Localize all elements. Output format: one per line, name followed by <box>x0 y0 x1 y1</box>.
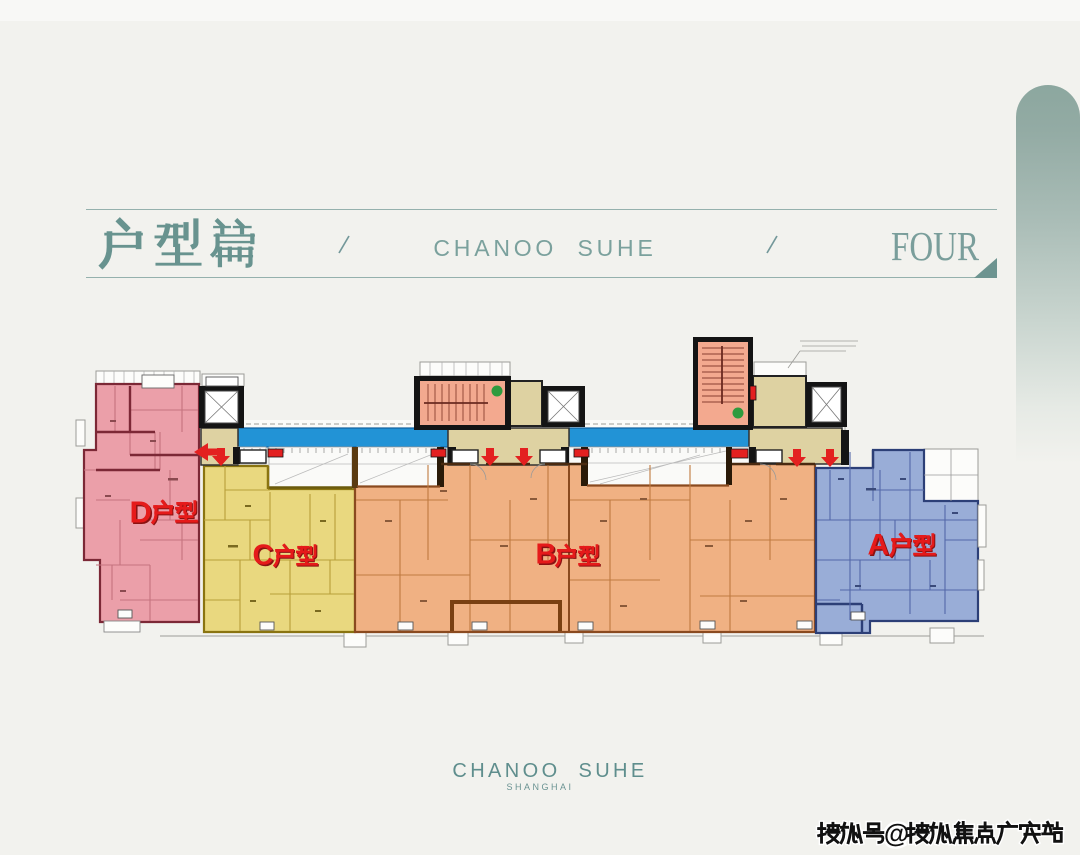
svg-text:@: @ <box>884 818 909 848</box>
svg-text:FOUR: FOUR <box>891 223 980 269</box>
svg-text:B: B <box>536 539 557 571</box>
svg-text:D: D <box>130 495 152 530</box>
svg-text:A: A <box>868 529 890 562</box>
svg-text:C: C <box>253 540 274 572</box>
